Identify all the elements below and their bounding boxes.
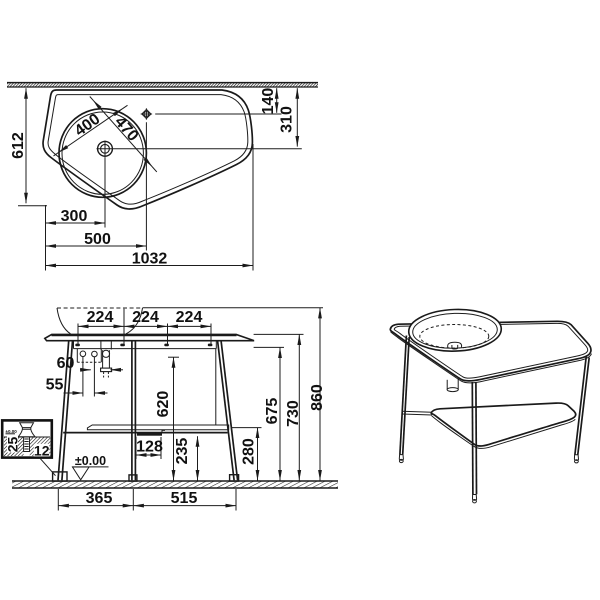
svg-text:365: 365 [86, 490, 113, 507]
svg-text:12: 12 [34, 443, 50, 459]
svg-text:±0.00: ±0.00 [6, 429, 18, 434]
svg-text:128: 128 [136, 439, 163, 456]
svg-text:612: 612 [10, 132, 27, 159]
svg-text:620: 620 [155, 391, 172, 418]
svg-text:1032: 1032 [132, 251, 168, 268]
svg-text:675: 675 [264, 398, 281, 425]
svg-text:224: 224 [176, 309, 203, 326]
svg-text:140: 140 [260, 88, 277, 115]
svg-text:310: 310 [279, 106, 296, 133]
svg-text:730: 730 [285, 400, 302, 427]
svg-text:300: 300 [61, 208, 88, 225]
svg-text:±0.00: ±0.00 [75, 454, 106, 468]
svg-text:280: 280 [241, 438, 258, 465]
svg-text:55: 55 [46, 377, 64, 394]
svg-text:515: 515 [171, 490, 198, 507]
svg-text:860: 860 [309, 384, 326, 411]
svg-text:60: 60 [57, 355, 75, 372]
svg-text:25: 25 [5, 437, 21, 453]
svg-text:500: 500 [84, 231, 111, 248]
svg-text:224: 224 [132, 309, 159, 326]
svg-text:235: 235 [174, 438, 191, 465]
svg-text:224: 224 [87, 309, 114, 326]
